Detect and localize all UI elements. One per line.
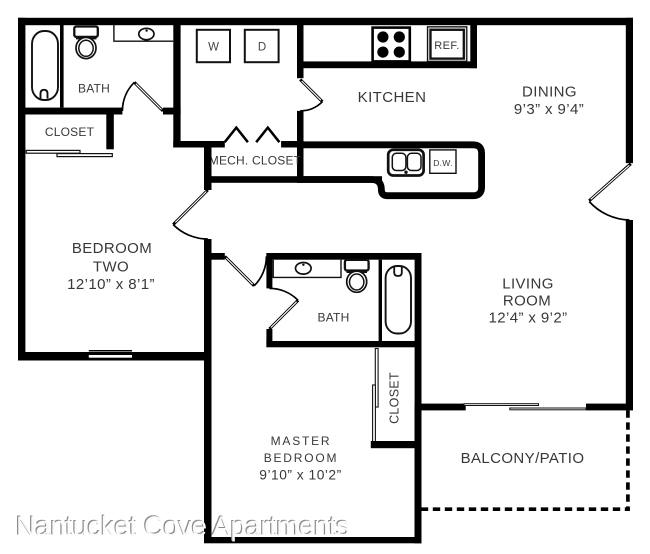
svg-text:BEDROOM: BEDROOM xyxy=(264,451,339,465)
svg-text:9’3” x 9’4”: 9’3” x 9’4” xyxy=(514,101,584,118)
svg-text:BEDROOM: BEDROOM xyxy=(72,240,152,257)
svg-text:KITCHEN: KITCHEN xyxy=(358,89,427,106)
svg-text:ROOM: ROOM xyxy=(503,293,551,310)
svg-text:REF.: REF. xyxy=(434,40,459,52)
svg-text:W: W xyxy=(208,42,219,54)
svg-text:LIVING: LIVING xyxy=(502,275,554,292)
svg-text:CLOSET: CLOSET xyxy=(388,372,402,424)
svg-text:DINING: DINING xyxy=(522,84,577,101)
svg-text:BALCONY/PATIO: BALCONY/PATIO xyxy=(461,450,585,467)
svg-text:9’10” x 10’2”: 9’10” x 10’2” xyxy=(259,468,341,483)
svg-text:D.W.: D.W. xyxy=(433,158,453,168)
svg-text:Nantucket Cove Apartments: Nantucket Cove Apartments xyxy=(16,511,350,542)
svg-text:12’10” x 8’1”: 12’10” x 8’1” xyxy=(67,276,155,293)
svg-text:D: D xyxy=(258,42,266,54)
svg-text:12’4” x 9’2”: 12’4” x 9’2” xyxy=(488,309,567,326)
svg-text:TWO: TWO xyxy=(93,258,129,275)
svg-text:BATH: BATH xyxy=(318,311,350,325)
svg-text:MECH. CLOSET: MECH. CLOSET xyxy=(209,154,302,168)
svg-text:BATH: BATH xyxy=(78,82,110,96)
svg-text:MASTER: MASTER xyxy=(271,434,332,448)
svg-text:CLOSET: CLOSET xyxy=(45,125,95,139)
